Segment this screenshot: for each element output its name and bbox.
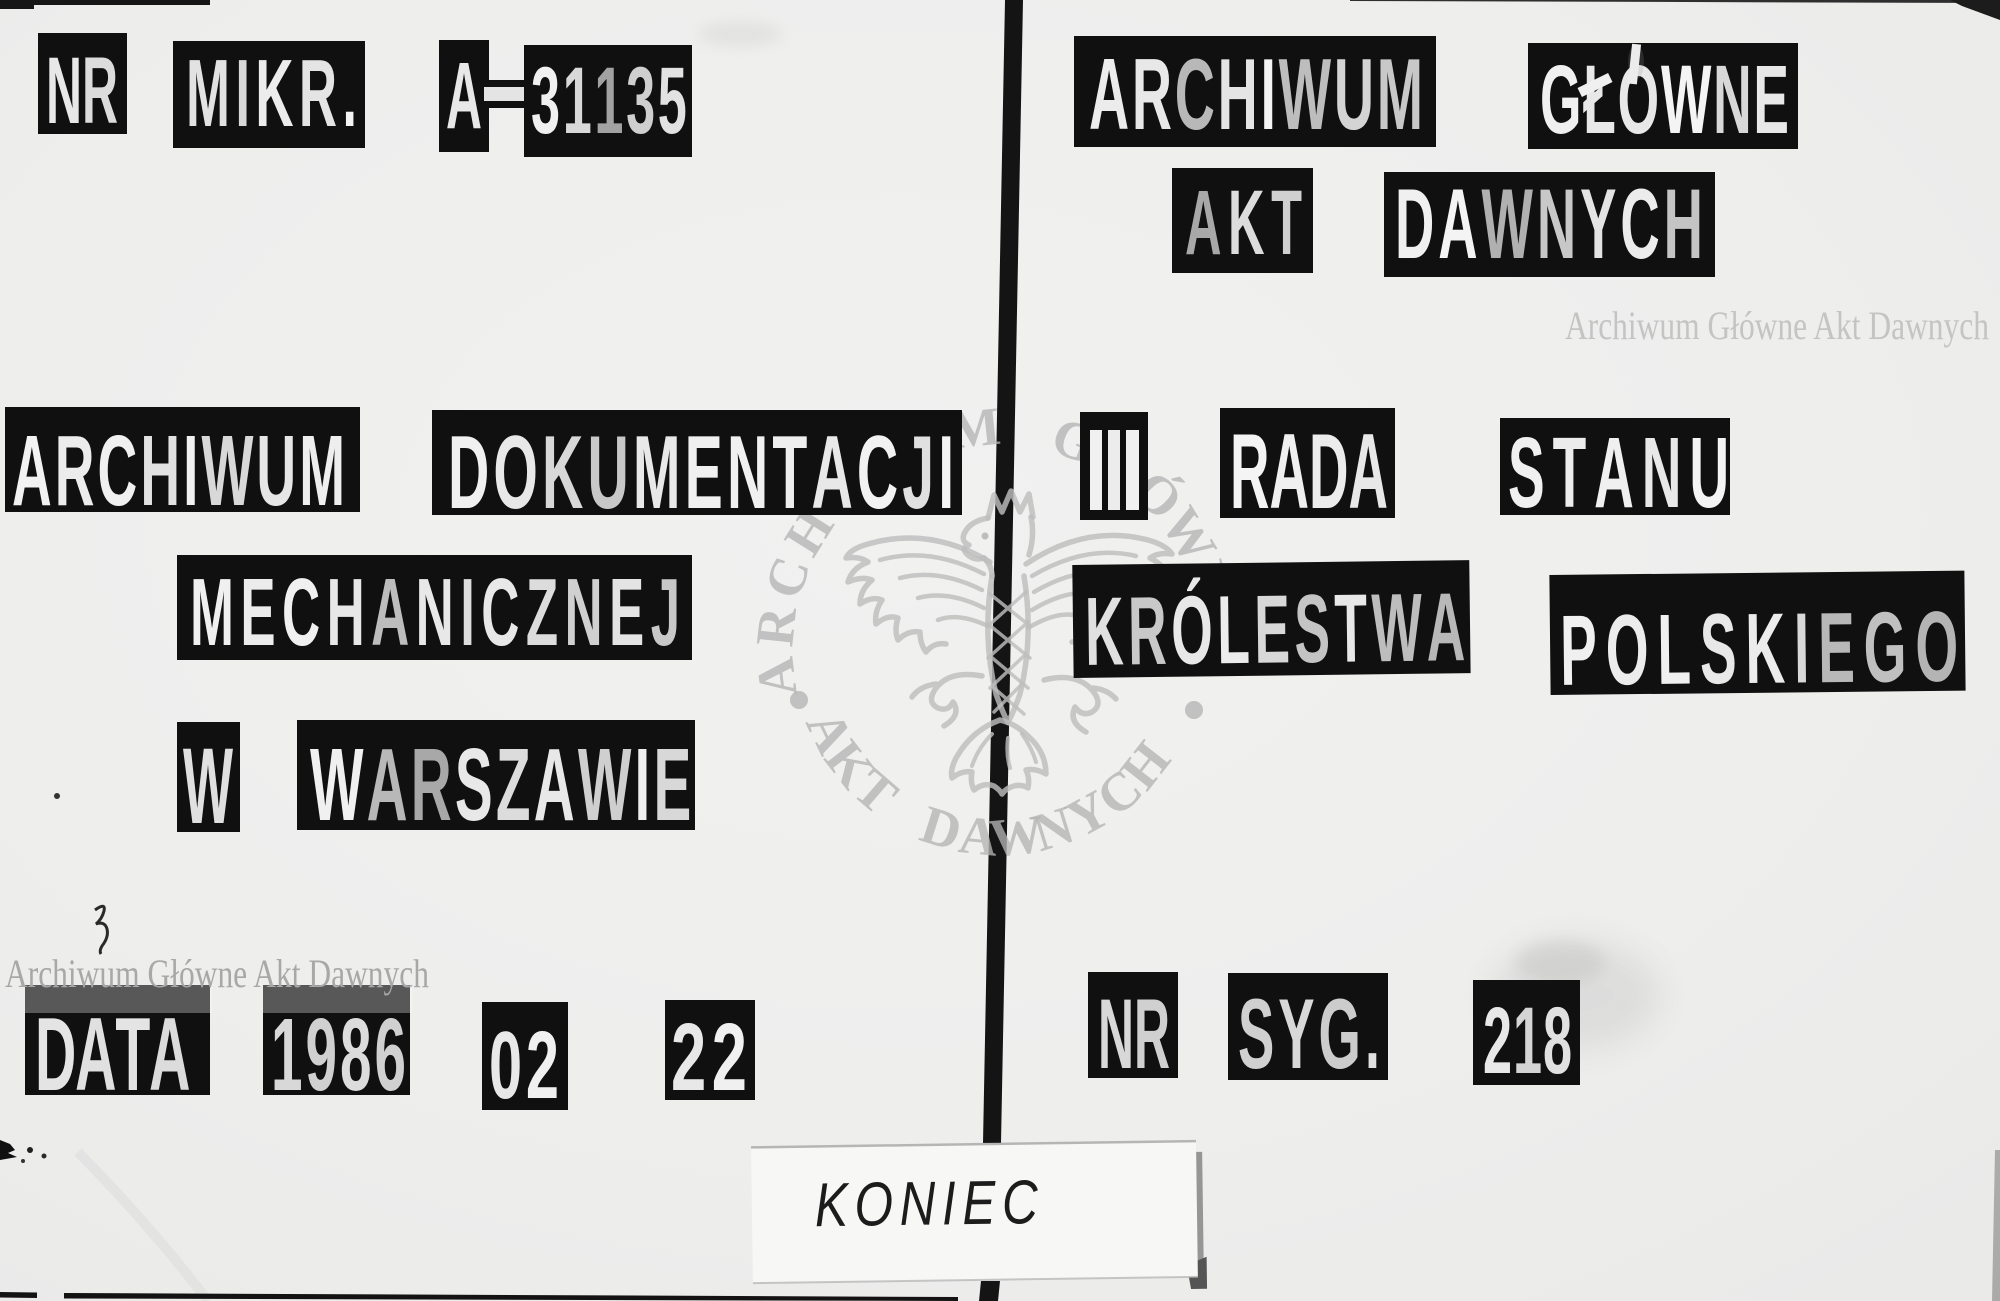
svg-text:22: 22 bbox=[671, 1004, 753, 1111]
svg-text:DATA: DATA bbox=[35, 996, 189, 1112]
svg-text:Archiwum Główne Akt Dawnych: Archiwum Główne Akt Dawnych bbox=[1565, 303, 1989, 348]
svg-text:WARSZAWIE: WARSZAWIE bbox=[310, 727, 694, 842]
svg-text:A: A bbox=[446, 43, 482, 149]
svg-text:Archiwum Główne Akt Dawnych: Archiwum Główne Akt Dawnych bbox=[5, 951, 429, 996]
svg-text:ARCHIWUM: ARCHIWUM bbox=[1089, 39, 1426, 152]
svg-text:R: R bbox=[744, 603, 808, 649]
svg-text:02: 02 bbox=[489, 1011, 563, 1118]
svg-text:218: 218 bbox=[1483, 989, 1573, 1094]
svg-text:STANU: STANU bbox=[1508, 418, 1737, 530]
svg-text:1986: 1986 bbox=[271, 997, 409, 1112]
svg-text:W: W bbox=[183, 727, 233, 848]
svg-text:MECHANICZNEJ: MECHANICZNEJ bbox=[190, 559, 686, 666]
svg-text:NR: NR bbox=[1098, 978, 1170, 1089]
svg-text:MIKR.: MIKR. bbox=[186, 40, 362, 147]
svg-text:31135: 31135 bbox=[531, 49, 690, 154]
svg-text:NR: NR bbox=[46, 38, 118, 144]
svg-text:POLSKIEGO: POLSKIEGO bbox=[1560, 591, 1968, 707]
svg-text:ARCHIWUM: ARCHIWUM bbox=[12, 416, 348, 528]
svg-text:KONIEC: KONIEC bbox=[814, 1167, 1044, 1240]
svg-text:GŁOWNE: GŁOWNE bbox=[1540, 45, 1791, 154]
svg-text:RADA: RADA bbox=[1230, 412, 1388, 532]
svg-text:SYG.: SYG. bbox=[1238, 979, 1384, 1089]
svg-text:KRÓLESTWA: KRÓLESTWA bbox=[1084, 572, 1470, 686]
svg-text:DAWNYCH: DAWNYCH bbox=[1395, 169, 1707, 279]
svg-text:AKT: AKT bbox=[1185, 171, 1309, 274]
svg-text:DOKUMENTACJI: DOKUMENTACJI bbox=[448, 414, 958, 530]
